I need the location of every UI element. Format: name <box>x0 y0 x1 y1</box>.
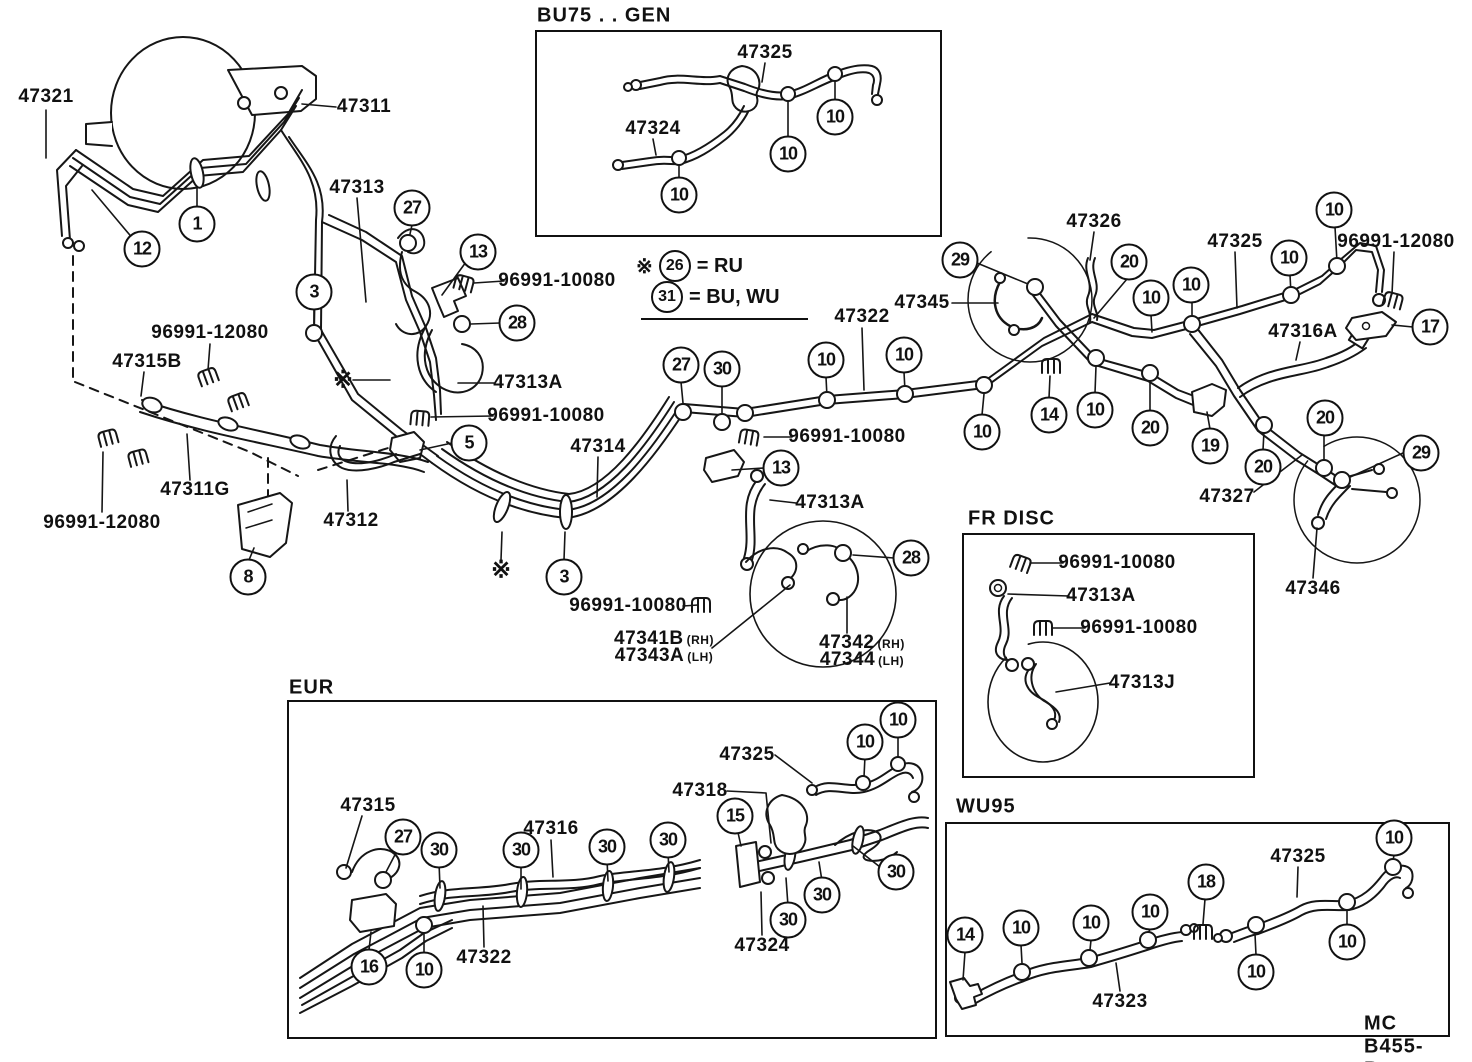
part-label-47323: 47323 <box>1092 991 1147 1013</box>
inset-title-bu75: BU75 . . GEN <box>537 5 671 28</box>
part-label-96991-10080: 96991-10080 <box>788 426 906 448</box>
part-label-47313: 47313 <box>329 177 384 199</box>
part-label-96991-10080: 96991-10080 <box>569 595 687 617</box>
callout-30: 30 <box>421 832 458 869</box>
asterisk-symbol: ※ <box>333 366 353 395</box>
callout-10: 10 <box>1271 240 1308 277</box>
callout-27: 27 <box>394 190 431 227</box>
callout-31: 31 <box>651 281 683 313</box>
callout-10: 10 <box>886 337 923 374</box>
callout-10: 10 <box>1133 280 1170 317</box>
part-label-suffix: (LH) <box>687 650 713 664</box>
part-label-96991-10080: 96991-10080 <box>1080 617 1198 639</box>
part-label-47325: 47325 <box>1207 231 1262 253</box>
part-label-47314: 47314 <box>570 436 625 458</box>
callout-30: 30 <box>804 877 841 914</box>
note-ru: ※ 26 = RU <box>636 250 743 282</box>
part-label-47343A: 47343A(LH) <box>615 645 714 667</box>
part-label-47324: 47324 <box>625 118 680 140</box>
callout-26: 26 <box>659 250 691 282</box>
callout-20: 20 <box>1245 449 1282 486</box>
callout-20: 20 <box>1307 400 1344 437</box>
callout-10: 10 <box>847 724 884 761</box>
callout-10: 10 <box>1376 820 1413 857</box>
part-label-47345: 47345 <box>894 292 949 314</box>
callout-28: 28 <box>893 540 930 577</box>
callout-30: 30 <box>650 822 687 859</box>
part-label-96991-12080: 96991-12080 <box>43 512 161 534</box>
part-label-47325: 47325 <box>1270 846 1325 868</box>
part-label-47313A: 47313A <box>795 492 865 514</box>
inset-title-wu95: WU95 <box>956 796 1016 819</box>
callout-30: 30 <box>589 829 626 866</box>
asterisk-symbol: ※ <box>491 556 511 585</box>
callout-10: 10 <box>1003 910 1040 947</box>
callout-10: 10 <box>880 702 917 739</box>
callout-18: 18 <box>1188 864 1225 901</box>
callout-17: 17 <box>1412 309 1449 346</box>
callout-29: 29 <box>1403 435 1440 472</box>
callout-14: 14 <box>1031 397 1068 434</box>
part-label-96991-12080: 96991-12080 <box>151 322 269 344</box>
callout-13: 13 <box>460 234 497 271</box>
part-label-47318: 47318 <box>672 780 727 802</box>
callout-30: 30 <box>704 351 741 388</box>
inset-box-eur <box>287 700 937 1039</box>
part-label-47315B: 47315B <box>112 351 182 373</box>
note-bu-wu: 31 = BU, WU <box>641 281 808 320</box>
callout-1: 1 <box>179 206 216 243</box>
part-label-47313J: 47313J <box>1109 672 1175 694</box>
note-bu-wu-text: = BU, WU <box>689 286 780 309</box>
callout-14: 14 <box>947 917 984 954</box>
part-label-47327: 47327 <box>1199 486 1254 508</box>
part-label-47325: 47325 <box>737 42 792 64</box>
callout-10: 10 <box>1132 894 1169 931</box>
part-label-47344: 47344(LH) <box>820 649 904 671</box>
part-label-47313A: 47313A <box>493 372 563 394</box>
callout-10: 10 <box>808 342 845 379</box>
part-label-47311G: 47311G <box>160 479 230 501</box>
callout-3: 3 <box>296 274 333 311</box>
callout-10: 10 <box>770 136 807 173</box>
inset-title-eur: EUR <box>289 677 334 700</box>
callout-3: 3 <box>546 559 583 596</box>
part-label-47322: 47322 <box>456 947 511 969</box>
note-ru-text: = RU <box>697 255 743 278</box>
callout-20: 20 <box>1111 244 1148 281</box>
part-label-47313A: 47313A <box>1066 585 1136 607</box>
part-label-47312: 47312 <box>323 510 378 532</box>
callout-10: 10 <box>1329 924 1366 961</box>
callout-10: 10 <box>817 99 854 136</box>
part-label-47315: 47315 <box>340 795 395 817</box>
callout-29: 29 <box>942 242 979 279</box>
part-label-96991-12080: 96991-12080 <box>1337 231 1455 253</box>
part-label-47311: 47311 <box>337 96 391 118</box>
asterisk-symbol: ※ <box>636 254 653 279</box>
callout-30: 30 <box>770 902 807 939</box>
callout-20: 20 <box>1132 410 1169 447</box>
callout-30: 30 <box>878 854 915 891</box>
callout-28: 28 <box>499 305 536 342</box>
callout-10: 10 <box>1173 267 1210 304</box>
part-label-47321: 47321 <box>18 86 73 108</box>
callout-15: 15 <box>717 798 754 835</box>
part-label-47324: 47324 <box>734 935 789 957</box>
callout-12: 12 <box>124 231 161 268</box>
callout-10: 10 <box>406 952 443 989</box>
callout-10: 10 <box>1238 954 1275 991</box>
callout-10: 10 <box>1316 192 1353 229</box>
part-label-47322: 47322 <box>834 306 889 328</box>
part-label-96991-10080: 96991-10080 <box>487 405 605 427</box>
callout-30: 30 <box>503 832 540 869</box>
part-label-96991-10080: 96991-10080 <box>498 270 616 292</box>
callout-8: 8 <box>230 559 267 596</box>
part-label-47346: 47346 <box>1285 578 1340 600</box>
part-label-suffix: (LH) <box>878 654 904 668</box>
callout-5: 5 <box>451 425 488 462</box>
callout-10: 10 <box>661 177 698 214</box>
part-label-96991-10080: 96991-10080 <box>1058 552 1176 574</box>
callout-10: 10 <box>964 414 1001 451</box>
callout-13: 13 <box>763 450 800 487</box>
callout-27: 27 <box>385 819 422 856</box>
callout-10: 10 <box>1073 905 1110 942</box>
callout-19: 19 <box>1192 428 1229 465</box>
inset-title-frdisc: FR DISC <box>968 508 1055 531</box>
part-label-47316A: 47316A <box>1268 321 1338 343</box>
callout-10: 10 <box>1077 392 1114 429</box>
part-label-47326: 47326 <box>1066 211 1121 233</box>
callout-16: 16 <box>351 949 388 986</box>
part-label-47325: 47325 <box>719 744 774 766</box>
parts-diagram-page: ※ 26 = RU 31 = BU, WU MC B455-B BU75 . .… <box>0 0 1472 1062</box>
callout-27: 27 <box>663 347 700 384</box>
